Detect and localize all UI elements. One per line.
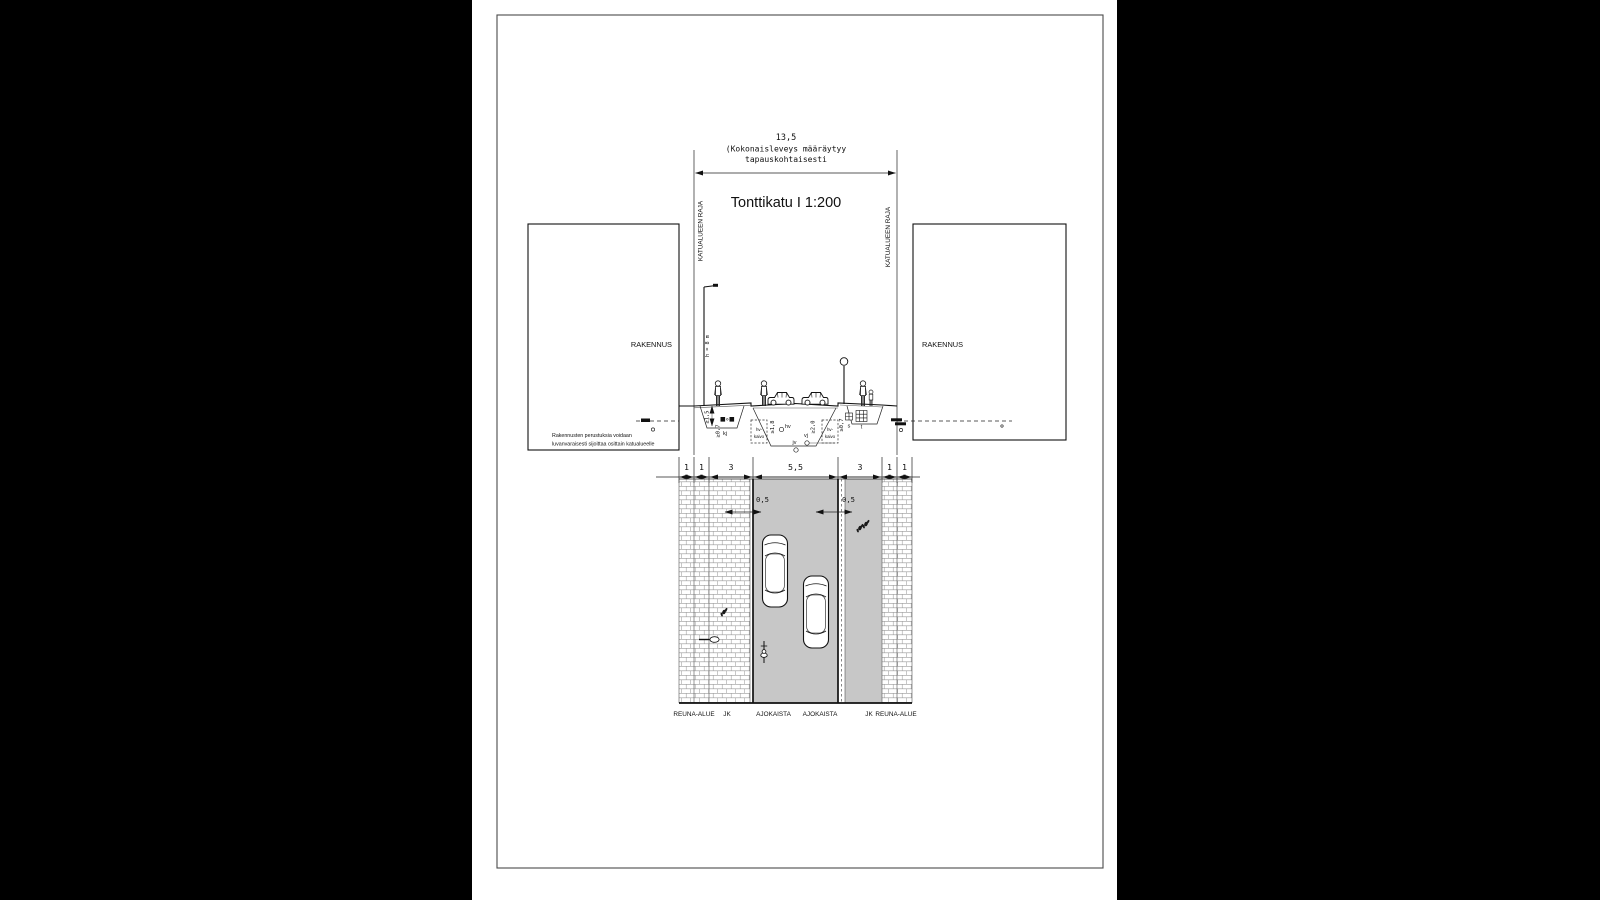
sign-pole-icon [840, 358, 848, 404]
total-width-dimension: 13,5 (Kokonaisleveys määräytyy tapauskoh… [696, 133, 896, 173]
total-width-note-line2: tapauskohtaisesti [745, 155, 827, 164]
car-top-icon [763, 535, 788, 607]
manhole-left-line2: kaivo [754, 434, 765, 439]
cable-duct-t: t [856, 411, 867, 431]
manhole-right-line2: kaivo [825, 434, 836, 439]
pedestrian-icon [860, 381, 867, 406]
depth-dim-18: ≥1,8 [770, 421, 776, 434]
plan-zones [679, 479, 912, 703]
foundation-note-line1: Rakennusten perustuksia voidaan [552, 433, 632, 439]
foundation-note-line2: luvanvaraisesti sijoittaa osittain katua… [552, 442, 655, 448]
depth-dim-20: ≥2,0 [811, 421, 817, 434]
car-side-icon [768, 393, 794, 406]
zone-label-5: REUNA-ALUE [875, 711, 916, 718]
depth-dim-07-left: ≥0,7 [716, 425, 722, 438]
pedestrian-icon [715, 381, 722, 406]
plan-dim-0: 1 [684, 462, 689, 472]
plan-view: 1 1 3 5,5 3 1 1 [656, 457, 920, 718]
plan-dim-2: 3 [729, 462, 734, 472]
drawing-title: Tonttikatu I 1:200 [731, 195, 841, 211]
s-label: s [848, 424, 851, 430]
building-right-label: RAKENNUS [922, 340, 963, 349]
zone-label-0: REUNA-ALUE [673, 711, 714, 718]
lamp-height-label: h = 8 m [705, 335, 711, 357]
plan-dim-1: 1 [699, 462, 704, 472]
building-left [528, 224, 679, 450]
child-icon [869, 390, 873, 406]
drawing-sheet: 13,5 (Kokonaisleveys määräytyy tapauskoh… [472, 0, 1117, 900]
viewer-background: 13,5 (Kokonaisleveys määräytyy tapauskoh… [0, 0, 1600, 900]
plan-dim-4: 3 [858, 462, 863, 472]
car-top-icon [804, 576, 829, 648]
manhole-left: hv- kaivo [751, 420, 767, 443]
plan-dim-5: 1 [887, 462, 892, 472]
plan-dim-6: 1 [902, 462, 907, 472]
zone-label-4: JK [865, 711, 873, 718]
pedestrian-icon [761, 381, 768, 406]
utility-trenches [700, 406, 883, 446]
t-label: t [861, 425, 863, 431]
zone-label-3: AJOKAISTA [803, 711, 838, 718]
plan-dim-3: 5,5 [788, 462, 803, 472]
car-side-icon [802, 393, 828, 406]
street-drawing: 13,5 (Kokonaisleveys määräytyy tapauskoh… [472, 0, 1117, 900]
zone-label-2: AJOKAISTA [756, 711, 791, 718]
boundary-label-left: KATUALUEEN RAJA [698, 200, 705, 261]
depth-dim-07-right: ≥0,7 [839, 419, 845, 432]
plan-zone-labels: REUNA-ALUE JK AJOKAISTA AJOKAISTA JK REU… [673, 711, 916, 718]
building-left-label: RAKENNUS [631, 340, 672, 349]
total-width-note-line1: (Kokonaisleveys määräytyy [726, 145, 847, 154]
cable-duct-kj: kj [721, 417, 735, 437]
kj-label: kj [723, 431, 727, 437]
manhole-left-line1: hv- [756, 427, 763, 432]
hv-label: hv [785, 424, 791, 430]
edge-offset-left-value: 0,5 [756, 495, 769, 504]
footway-band-right [845, 479, 882, 703]
vj-label: vj [804, 433, 808, 439]
manhole-right: hv- kaivo [822, 420, 838, 443]
jv-label: jv [792, 440, 797, 446]
section-view: 13,5 (Kokonaisleveys määräytyy tapauskoh… [528, 133, 1066, 455]
edge-offset-right-value: 0,5 [842, 495, 855, 504]
building-right [913, 224, 1066, 440]
depth-dim-15: ≥1,5 [705, 411, 711, 424]
manhole-right-line1: hv- [827, 427, 834, 432]
zone-label-1: JK [723, 711, 731, 718]
total-width-value: 13,5 [776, 133, 796, 143]
boundary-label-right: KATUALUEEN RAJA [885, 206, 892, 267]
verge-band-left [679, 479, 750, 703]
